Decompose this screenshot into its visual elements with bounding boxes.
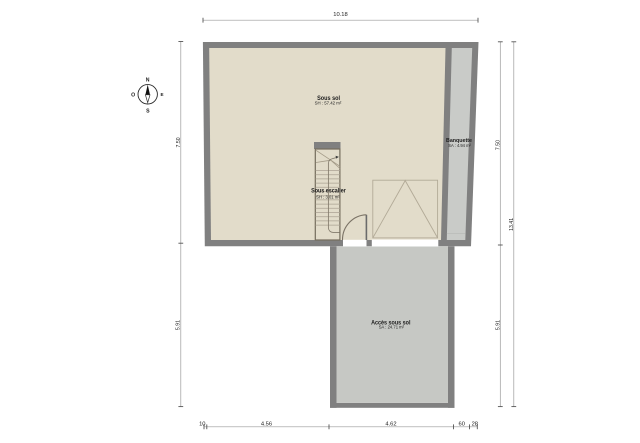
svg-text:13.41: 13.41 (509, 218, 515, 231)
svg-text:5.91: 5.91 (176, 320, 182, 330)
svg-text:7.50: 7.50 (176, 137, 182, 147)
svg-text:4.56: 4.56 (261, 422, 272, 428)
svg-text:SH : 57.42 m²: SH : 57.42 m² (315, 100, 342, 105)
svg-text:5.91: 5.91 (496, 320, 502, 330)
svg-text:SA : 24.71 m²: SA : 24.71 m² (379, 325, 405, 330)
svg-text:N: N (146, 78, 150, 84)
svg-text:O: O (131, 92, 135, 98)
svg-text:28: 28 (472, 422, 478, 428)
svg-text:SH : 3.01 m²: SH : 3.01 m² (316, 194, 340, 199)
svg-text:S: S (146, 109, 150, 115)
svg-text:E: E (160, 92, 163, 97)
svg-text:10: 10 (199, 422, 205, 428)
svg-text:10.18: 10.18 (333, 12, 348, 18)
svg-text:60: 60 (458, 422, 464, 428)
svg-text:4.62: 4.62 (385, 422, 396, 428)
svg-text:7.50: 7.50 (496, 140, 502, 150)
svg-text:SA : 4.94 m²: SA : 4.94 m² (448, 143, 471, 148)
